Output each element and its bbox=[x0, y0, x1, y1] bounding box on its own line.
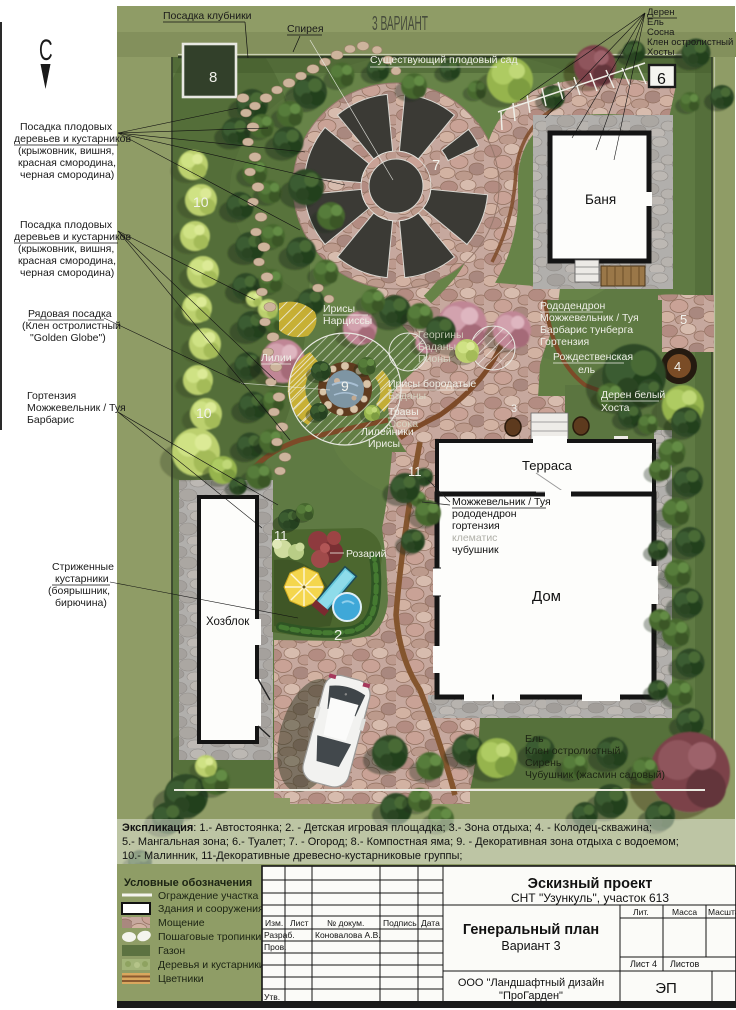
svg-text:ЭП: ЭП bbox=[655, 980, 677, 997]
svg-text:Баданы: Баданы bbox=[388, 390, 426, 402]
svg-text:Коновалова А.В.: Коновалова А.В. bbox=[315, 930, 381, 940]
svg-text:Баня: Баня bbox=[585, 192, 616, 207]
svg-text:Можжевельник / Туя: Можжевельник / Туя bbox=[27, 402, 126, 414]
svg-text:Гортензия: Гортензия bbox=[27, 390, 76, 402]
svg-text:Чубушник (жасмин садовый): Чубушник (жасмин садовый) bbox=[525, 769, 665, 781]
svg-text:С: С bbox=[39, 34, 53, 68]
svg-text:Спирея: Спирея bbox=[287, 23, 324, 35]
svg-text:Генеральный план: Генеральный план bbox=[463, 922, 599, 938]
svg-text:Ирисы: Ирисы bbox=[368, 438, 400, 450]
svg-text:рододендрон: рододендрон bbox=[452, 508, 517, 520]
svg-text:Георгины: Георгины bbox=[418, 329, 464, 341]
svg-text:Посадка плодовых: Посадка плодовых bbox=[20, 121, 113, 133]
svg-text:Подпись: Подпись bbox=[383, 918, 417, 928]
svg-text:(крыжовник, вишня,: (крыжовник, вишня, bbox=[18, 145, 114, 157]
svg-text:Масштаб: Масштаб bbox=[708, 907, 736, 917]
svg-text:красная смородина,: красная смородина, bbox=[18, 157, 116, 169]
svg-text:Эскизный проект: Эскизный проект bbox=[528, 876, 653, 892]
svg-text:Рождественская: Рождественская bbox=[553, 351, 633, 363]
svg-text:Барбарис: Барбарис bbox=[27, 414, 74, 426]
svg-text:Барбарис тунберга: Барбарис тунберга bbox=[540, 324, 633, 336]
svg-text:5: 5 bbox=[680, 312, 687, 327]
svg-text:11: 11 bbox=[408, 464, 422, 479]
svg-text:Посадка клубники: Посадка клубники bbox=[163, 10, 252, 22]
svg-text:(крыжовник, вишня,: (крыжовник, вишня, bbox=[18, 243, 114, 255]
svg-text:черная смородина): черная смородина) bbox=[20, 267, 114, 279]
svg-text:Розарий: Розарий bbox=[346, 548, 387, 560]
svg-text:Ирисы: Ирисы bbox=[323, 303, 355, 315]
svg-text:Стриженные: Стриженные bbox=[52, 561, 114, 573]
svg-text:Ограждение участка: Ограждение участка bbox=[158, 890, 259, 902]
svg-text:4: 4 bbox=[674, 359, 681, 374]
svg-text:бирючина): бирючина) bbox=[55, 597, 107, 609]
svg-text:ель: ель bbox=[578, 364, 596, 376]
svg-text:Лист: Лист bbox=[290, 918, 309, 928]
svg-text:Пошаговые тропинки: Пошаговые тропинки bbox=[158, 931, 261, 943]
svg-text:Условные обозначения: Условные обозначения bbox=[124, 877, 252, 889]
svg-text:ООО "Ландшафтный дизайн: ООО "Ландшафтный дизайн bbox=[458, 977, 604, 989]
svg-text:Экспликация: 1.- Автостоянка;: Экспликация: 1.- Автостоянка; 2. - Детск… bbox=[122, 822, 652, 834]
svg-text:Терраса: Терраса bbox=[522, 458, 573, 473]
svg-text:7: 7 bbox=[432, 157, 440, 174]
svg-text:Существующий плодовый сад: Существующий плодовый сад bbox=[370, 54, 518, 66]
svg-text:Дерен белый: Дерен белый bbox=[601, 389, 665, 401]
svg-text:Листов: Листов bbox=[670, 959, 699, 969]
svg-text:Рододендрон: Рододендрон bbox=[540, 300, 605, 312]
svg-text:черная смородина): черная смородина) bbox=[20, 169, 114, 181]
svg-text:6: 6 bbox=[657, 71, 666, 88]
svg-text:Пров.: Пров. bbox=[264, 942, 286, 952]
svg-text:красная смородина,: красная смородина, bbox=[18, 255, 116, 267]
svg-text:10: 10 bbox=[196, 405, 212, 421]
svg-text:"Golden Globe"): "Golden Globe") bbox=[30, 332, 106, 344]
svg-text:3: 3 bbox=[511, 403, 517, 415]
svg-text:клематис: клематис bbox=[452, 532, 497, 544]
svg-text:5.- Мангальная зона; 6.- Туале: 5.- Мангальная зона; 6.- Туалет; 7. - Ог… bbox=[122, 836, 679, 848]
svg-text:Хоста: Хоста bbox=[601, 402, 630, 414]
svg-text:Баданы: Баданы bbox=[418, 341, 456, 353]
svg-text:Нарциссы: Нарциссы bbox=[323, 315, 372, 327]
svg-text:Цветники: Цветники bbox=[158, 973, 204, 985]
svg-text:11: 11 bbox=[274, 528, 288, 543]
svg-text:Дата: Дата bbox=[421, 918, 440, 928]
svg-text:3 ВАРИАНТ: 3 ВАРИАНТ bbox=[372, 13, 428, 35]
svg-text:Лилии: Лилии bbox=[261, 352, 292, 364]
svg-text:Дом: Дом bbox=[532, 588, 561, 605]
svg-text:Газон: Газон bbox=[158, 945, 185, 957]
svg-text:деревьев и кустарников: деревьев и кустарников bbox=[14, 133, 131, 145]
svg-text:деревьев и кустарников: деревьев и кустарников bbox=[14, 231, 131, 243]
svg-text:Пионы: Пионы bbox=[418, 353, 451, 365]
svg-text:Можжевельник / Туя: Можжевельник / Туя bbox=[540, 312, 639, 324]
svg-text:Ель: Ель bbox=[525, 733, 544, 745]
svg-text:Мощение: Мощение bbox=[158, 917, 205, 929]
svg-text:(Клен остролистный: (Клен остролистный bbox=[22, 320, 121, 332]
svg-text:Деревья и кустарники: Деревья и кустарники bbox=[158, 959, 265, 971]
svg-text:кустарники: кустарники bbox=[55, 573, 109, 585]
svg-text:9: 9 bbox=[341, 378, 349, 394]
svg-text:Рядовая посадка: Рядовая посадка bbox=[28, 308, 112, 320]
svg-text:"ПроГарден": "ПроГарден" bbox=[499, 990, 563, 1002]
svg-text:Здания и сооружения: Здания и сооружения bbox=[158, 903, 264, 915]
svg-text:Лист 4: Лист 4 bbox=[630, 959, 657, 969]
svg-text:2: 2 bbox=[334, 627, 342, 644]
svg-text:чубушник: чубушник bbox=[452, 544, 499, 556]
svg-text:Масса: Масса bbox=[672, 907, 697, 917]
svg-text:Хозблок: Хозблок bbox=[206, 616, 250, 628]
svg-text:гортензия: гортензия bbox=[452, 520, 500, 532]
svg-text:Хосты: Хосты bbox=[647, 47, 675, 58]
svg-text:Разраб.: Разраб. bbox=[264, 930, 295, 940]
svg-text:№ докум.: № докум. bbox=[327, 918, 364, 928]
svg-text:Гортензия: Гортензия bbox=[540, 336, 589, 348]
svg-text:Травы: Травы bbox=[388, 406, 419, 418]
svg-text:Посадка плодовых: Посадка плодовых bbox=[20, 219, 113, 231]
svg-text:(боярышник,: (боярышник, bbox=[48, 585, 110, 597]
svg-text:10.- Малинник, 11-Декоративные: 10.- Малинник, 11-Декоративные древесно-… bbox=[122, 850, 462, 862]
svg-text:Лит.: Лит. bbox=[633, 907, 649, 917]
svg-text:Утв.: Утв. bbox=[264, 992, 280, 1002]
svg-text:Ирисы бородатые: Ирисы бородатые bbox=[388, 378, 476, 390]
svg-text:Клен остролистный: Клен остролистный bbox=[525, 745, 621, 757]
svg-text:10: 10 bbox=[193, 194, 209, 210]
svg-text:Лилейники: Лилейники bbox=[361, 426, 414, 438]
svg-text:8: 8 bbox=[209, 69, 217, 86]
svg-text:Можжевельник / Туя: Можжевельник / Туя bbox=[452, 496, 551, 508]
svg-text:Изм.: Изм. bbox=[265, 918, 283, 928]
svg-text:Сирень: Сирень bbox=[525, 757, 562, 769]
svg-text:Вариант 3: Вариант 3 bbox=[501, 939, 560, 953]
svg-text:СНТ "Узункуль", участок 613: СНТ "Узункуль", участок 613 bbox=[511, 891, 669, 905]
